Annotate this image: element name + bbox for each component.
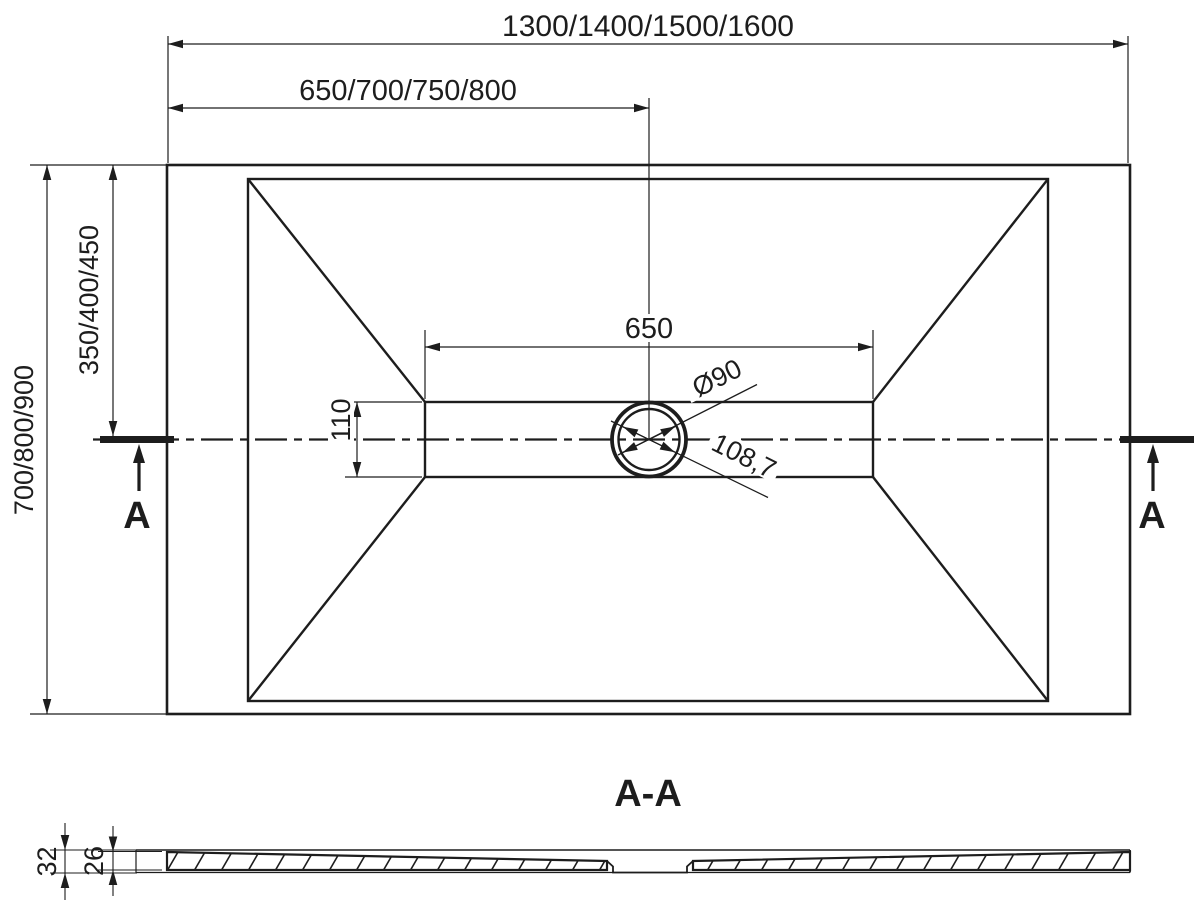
dim-half-width-label: 650/700/750/800	[299, 75, 517, 107]
dim-tray-thickness-label: 26	[79, 846, 109, 876]
section-cut-marker-left: A	[100, 440, 174, 538]
slope-diagonal-top-left	[248, 179, 425, 402]
drain-diameter-callout: Ø90	[680, 349, 754, 406]
shower-tray-technical-drawing: 1300/1400/1500/1600 650/700/750/800 700/…	[0, 0, 1200, 904]
slope-diagonal-bottom-right	[873, 477, 1048, 701]
drawing-sheet: 1300/1400/1500/1600 650/700/750/800 700/…	[0, 0, 1200, 904]
section-material-right	[693, 852, 1130, 870]
dim-channel-width: 110	[326, 394, 422, 477]
diameter-arrow	[623, 440, 650, 453]
dim-half-depth: 350/400/450	[74, 165, 113, 436]
dim-overall-width-label: 1300/1400/1500/1600	[502, 10, 794, 43]
plan-view: 1300/1400/1500/1600 650/700/750/800 700/…	[9, 10, 1194, 714]
slope-diagonal-bottom-left	[248, 477, 425, 701]
drain: Ø90 108,7	[611, 349, 785, 497]
dim-overall-depth-label: 700/800/900	[9, 365, 39, 515]
slope-diagonal-top-right	[873, 179, 1048, 402]
dim-half-width: 650/700/750/800	[168, 75, 649, 440]
dim-half-depth-label: 350/400/450	[74, 225, 104, 375]
dim-total-thickness-label: 32	[32, 846, 62, 876]
section-material-left	[167, 852, 607, 870]
dim-channel-width-label: 110	[326, 398, 356, 441]
flange-arrow	[623, 427, 649, 440]
dim-tray-thickness: 26	[79, 826, 162, 896]
section-marker-left-label: A	[123, 495, 150, 537]
flange-arrow	[649, 440, 675, 453]
dim-channel-length-label: 650	[625, 313, 673, 345]
view-direction-arrowhead	[133, 444, 145, 463]
section-view: A-A 32 26	[32, 773, 1130, 900]
section-title: A-A	[614, 773, 682, 815]
diameter-arrow	[649, 426, 676, 439]
view-direction-arrowhead	[1147, 444, 1159, 463]
section-drain-recess	[607, 861, 693, 873]
section-marker-right-label: A	[1138, 495, 1165, 537]
